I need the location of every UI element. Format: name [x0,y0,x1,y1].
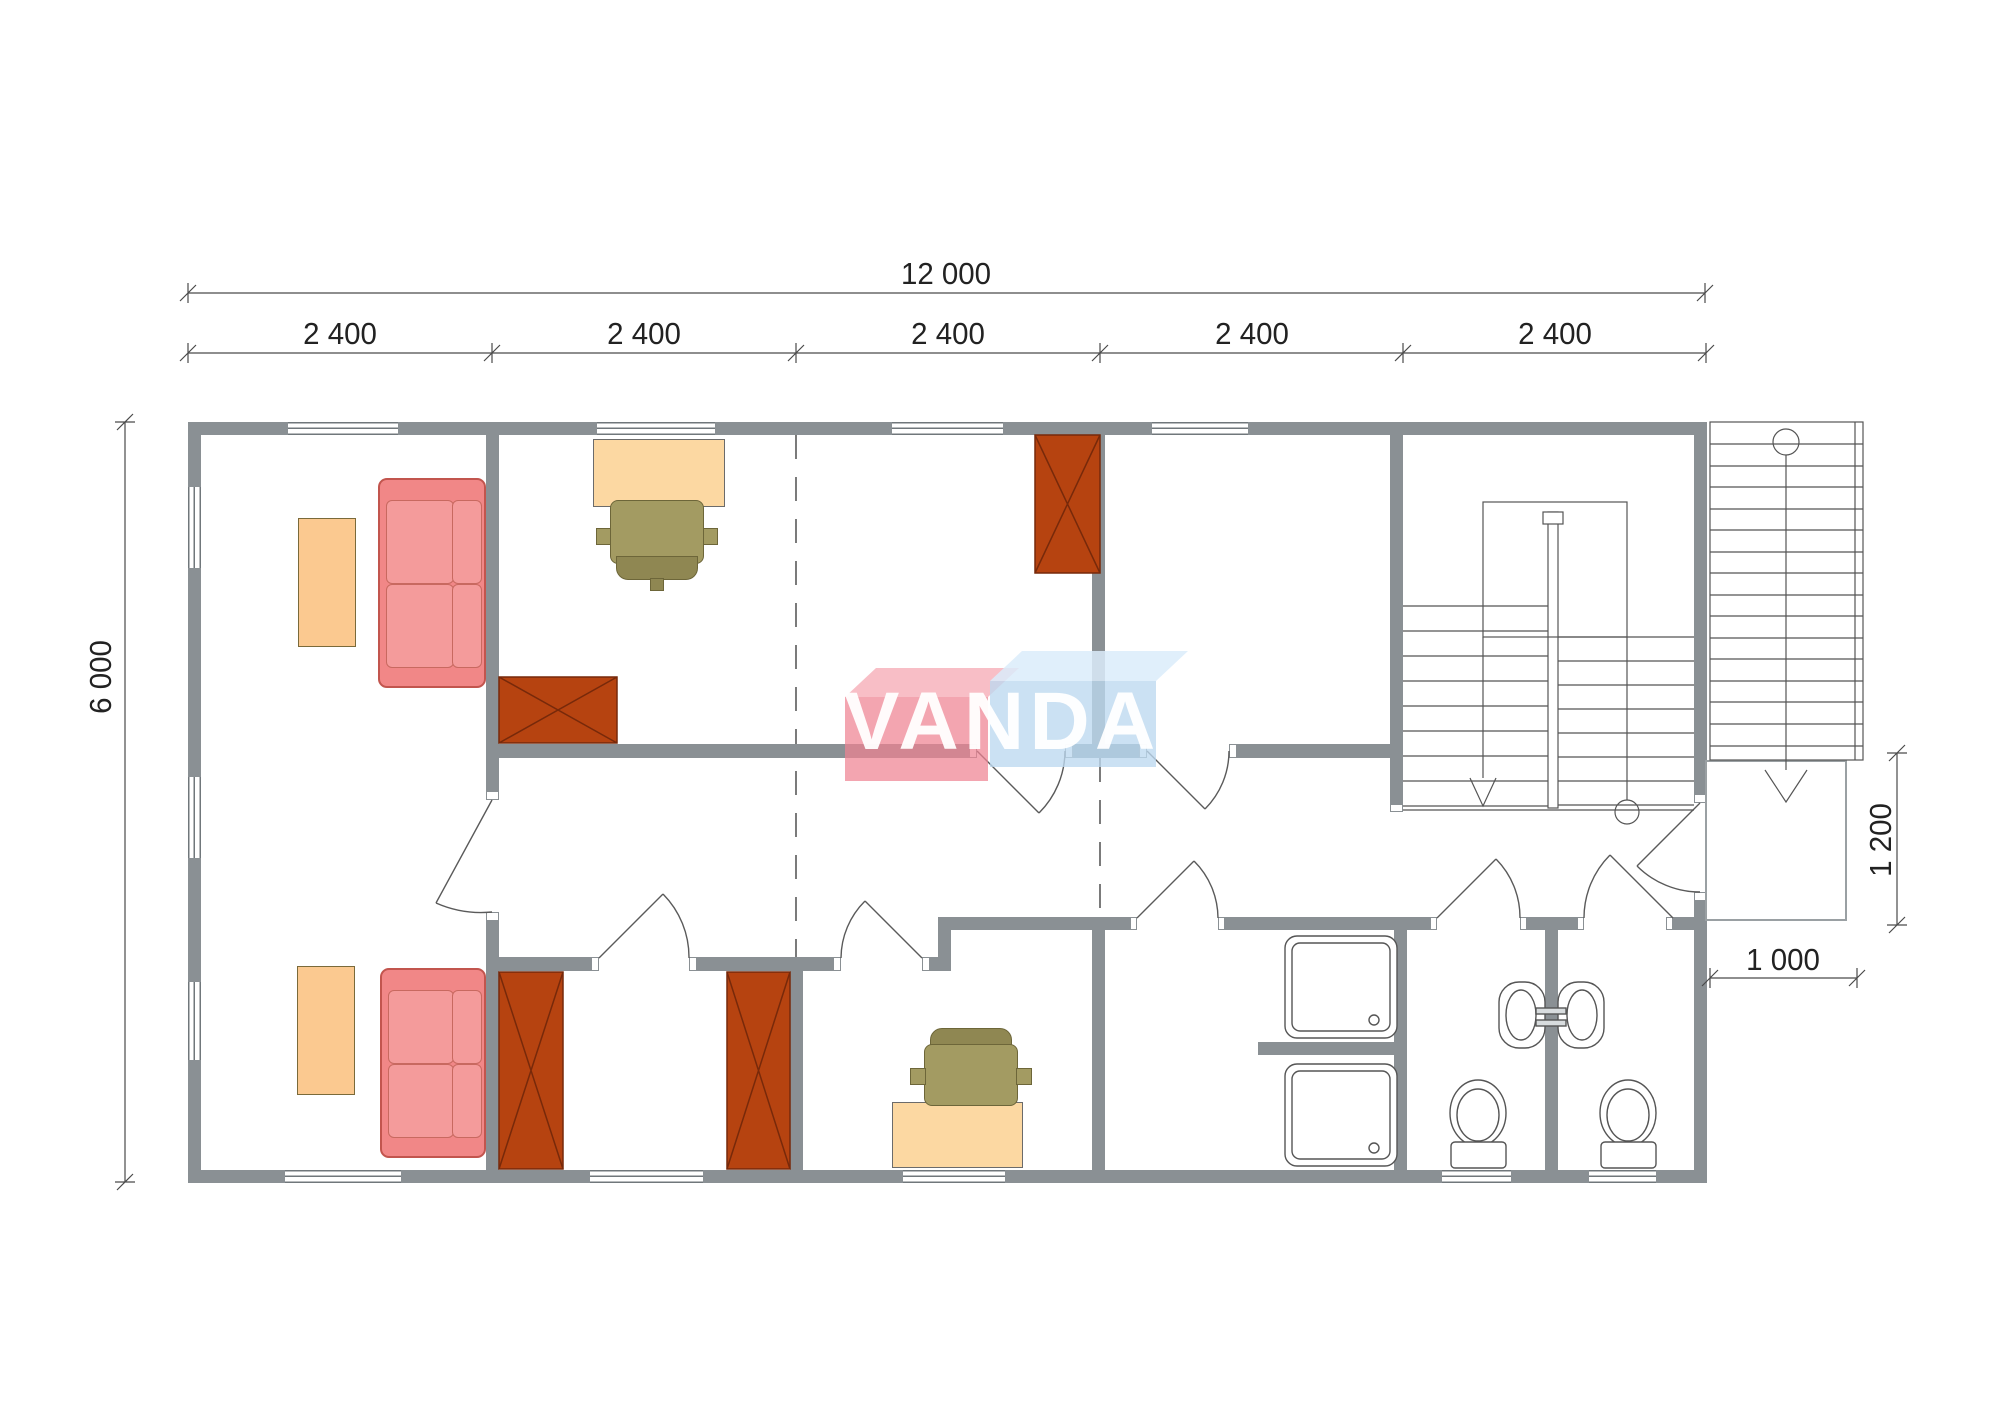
dim-module-1: 2 400 [245,316,435,352]
dim-overall-depth: 6 000 [83,582,119,772]
dim-porch-width: 1 000 [1688,942,1878,978]
watermark-text: VANDA [825,678,1180,766]
dim-overall-width: 12 000 [851,256,1041,292]
dim-module-2: 2 400 [549,316,739,352]
dim-module-5: 2 400 [1460,316,1650,352]
dim-porch-depth: 1 200 [1863,745,1899,935]
dim-module-4: 2 400 [1157,316,1347,352]
dim-module-3: 2 400 [853,316,1043,352]
floor-plan: VANDA 12 000 2 400 2 400 2 400 2 400 2 4… [0,0,2000,1423]
